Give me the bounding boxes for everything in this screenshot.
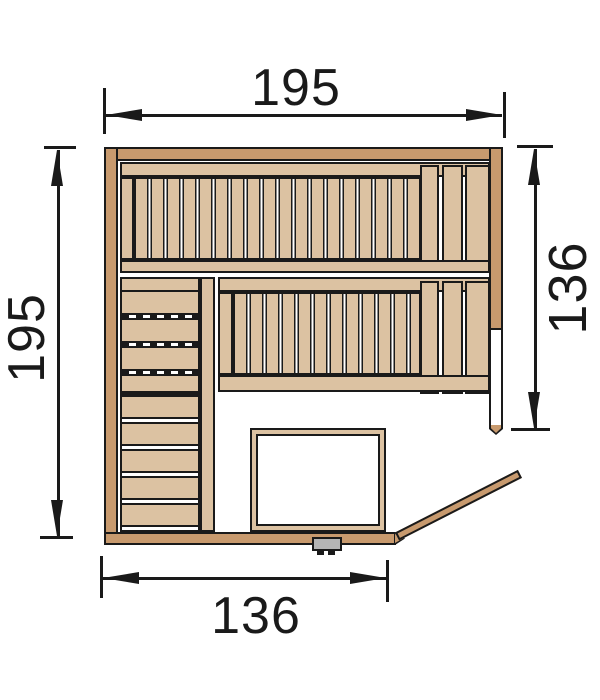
dim-extension-tick xyxy=(503,92,506,138)
dim-extension-tick xyxy=(517,145,553,148)
wall-left xyxy=(104,147,118,545)
lower-bench-left-rail xyxy=(218,292,233,375)
wall-bottom xyxy=(104,532,396,545)
heater-box xyxy=(250,428,386,532)
dim-line xyxy=(103,577,387,580)
upper-bench-slats xyxy=(134,177,422,260)
dim-label-bottom-width: 136 xyxy=(156,590,356,642)
dim-arrowhead-left xyxy=(106,109,142,121)
control-unit-foot xyxy=(328,551,335,555)
dim-label-left-height: 195 xyxy=(1,258,53,418)
dim-arrowhead-right xyxy=(350,572,386,584)
dim-arrowhead-left xyxy=(103,572,139,584)
sauna-plan xyxy=(104,147,503,545)
dim-arrowhead-up xyxy=(51,150,63,186)
door-jamb-right xyxy=(489,425,503,435)
dim-extension-tick xyxy=(40,536,73,539)
side-bench-upper-slats xyxy=(120,292,200,391)
upper-bench-front-rail xyxy=(120,260,490,273)
side-bench-lower-slats xyxy=(120,397,200,532)
upper-bench-end-board xyxy=(420,165,439,265)
dim-extension-tick xyxy=(44,146,76,149)
dim-label-top-width: 195 xyxy=(196,62,396,114)
lower-bench-front-rail xyxy=(218,375,490,392)
upper-bench-left-rail xyxy=(120,177,134,260)
side-bench-top-plank xyxy=(120,277,200,292)
wall-right-upper xyxy=(489,147,503,330)
door-jamb-right-face xyxy=(491,425,501,433)
upper-bench-end-board xyxy=(442,165,463,265)
dim-arrowhead-down xyxy=(51,500,63,536)
wall-top xyxy=(104,147,503,161)
wall-right-glass-front xyxy=(489,328,503,427)
upper-bench-end-board xyxy=(465,165,490,265)
dim-arrowhead-up xyxy=(528,149,540,185)
dim-arrowhead-right xyxy=(466,109,502,121)
dim-arrowhead-down xyxy=(528,392,540,428)
door-control-unit xyxy=(312,537,342,551)
control-unit-foot xyxy=(317,551,324,555)
dim-extension-tick xyxy=(386,560,389,602)
sauna-floorplan-diagram: 195 195 136 136 xyxy=(0,0,600,700)
side-bench-front-rail xyxy=(200,277,215,532)
heater-box-inner xyxy=(256,434,380,526)
lower-bench-slats xyxy=(233,292,421,375)
dim-label-right-height: 136 xyxy=(541,208,593,368)
dim-line xyxy=(534,149,537,428)
dim-extension-tick xyxy=(511,428,550,431)
dim-line xyxy=(57,150,60,536)
